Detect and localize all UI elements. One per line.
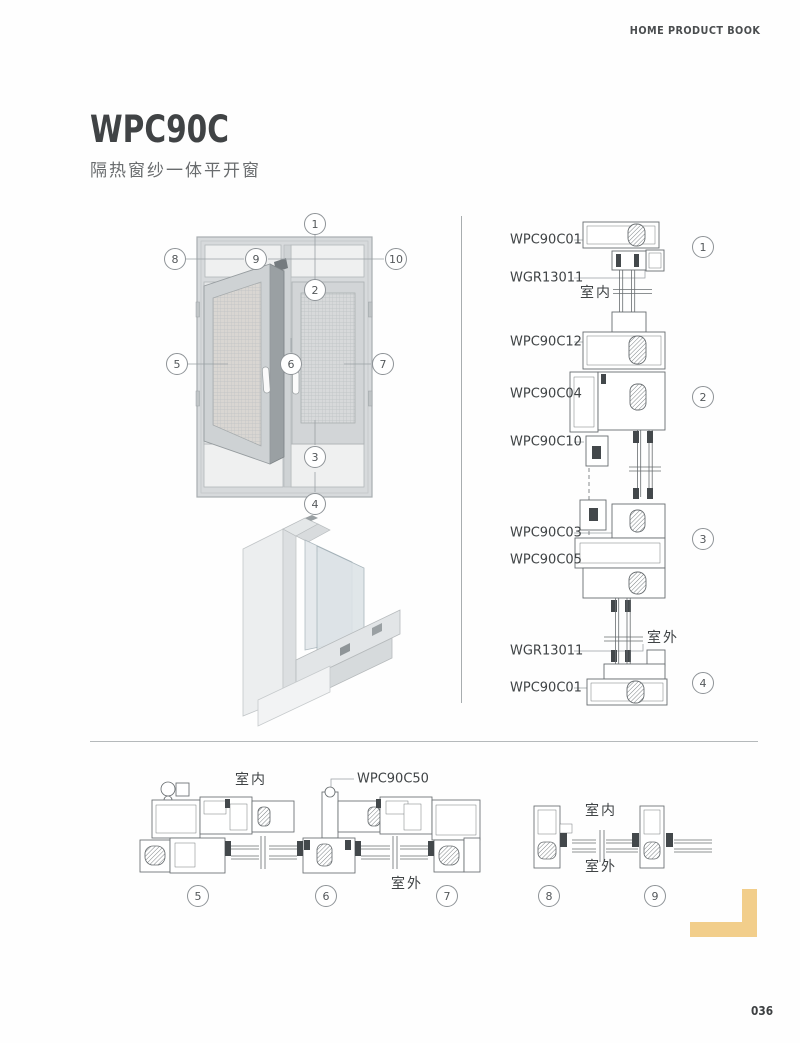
horizontal-section-a-drawing (120, 758, 490, 908)
exterior-label-plan-b: 室外 (585, 856, 617, 876)
section-callout-4: 4 (692, 672, 714, 694)
horizontal-divider (90, 741, 758, 742)
callout-4: 4 (304, 493, 326, 515)
plan-profiles (140, 782, 480, 873)
callout-7: 7 (372, 353, 394, 375)
part-label-wpc90c12: WPC90C12 (510, 335, 582, 350)
callout-10: 10 (385, 248, 407, 270)
plan-callout-6: 6 (315, 885, 337, 907)
interior-label-plan-a: 室内 (235, 769, 267, 789)
callout-5: 5 (166, 353, 188, 375)
plan-callout-5: 5 (187, 885, 209, 907)
frame-left-face (243, 529, 283, 716)
sill-section (587, 598, 667, 705)
corner-section-render (225, 515, 425, 735)
product-model-title: WPC90C (90, 108, 229, 151)
book-header: HOME PRODUCT BOOK (629, 24, 760, 37)
part-label-wgr13011-bottom: WGR13011 (510, 644, 583, 659)
callout-1: 1 (304, 213, 326, 235)
product-subtitle: 隔热窗纱一体平开窗 (90, 156, 264, 181)
part-label-wpc90c10: WPC90C10 (510, 435, 582, 450)
interior-label-vertical: 室内 (580, 282, 612, 302)
exterior-label-plan-a: 室外 (391, 873, 423, 893)
callout-8: 8 (164, 248, 186, 270)
callout-3: 3 (304, 446, 326, 468)
interior-label-plan-b: 室内 (585, 800, 617, 820)
plan-callout-8: 8 (538, 885, 560, 907)
part-label-wpc90c05: WPC90C05 (510, 553, 582, 568)
open-sash-handle (262, 367, 270, 393)
plan-callout-7: 7 (436, 885, 458, 907)
callout-2: 2 (304, 279, 326, 301)
callout-9: 9 (245, 248, 267, 270)
part-label-wpc90c04: WPC90C04 (510, 387, 582, 402)
part-label-wpc90c50: WPC90C50 (357, 772, 429, 787)
part-label-wgr13011-top: WGR13011 (510, 271, 583, 286)
section-callout-2: 2 (692, 386, 714, 408)
part-label-wpc90c01-top: WPC90C01 (510, 233, 582, 248)
page-number: 036 (751, 1004, 773, 1018)
open-sash (204, 258, 288, 464)
mid-section (575, 500, 665, 598)
part-label-wpc90c01-bottom: WPC90C01 (510, 681, 582, 696)
catalog-page: HOME PRODUCT BOOK WPC90C 隔热窗纱一体平开窗 (0, 0, 800, 1043)
exterior-label-vertical: 室外 (647, 627, 679, 647)
part-label-wpc90c03: WPC90C03 (510, 526, 582, 541)
section-callout-1: 1 (692, 236, 714, 258)
screen-sash (292, 282, 364, 444)
callout-6: 6 (280, 353, 302, 375)
title-block: WPC90C 隔热窗纱一体平开窗 (90, 108, 264, 181)
section-callout-3: 3 (692, 528, 714, 550)
plan-callout-9: 9 (644, 885, 666, 907)
